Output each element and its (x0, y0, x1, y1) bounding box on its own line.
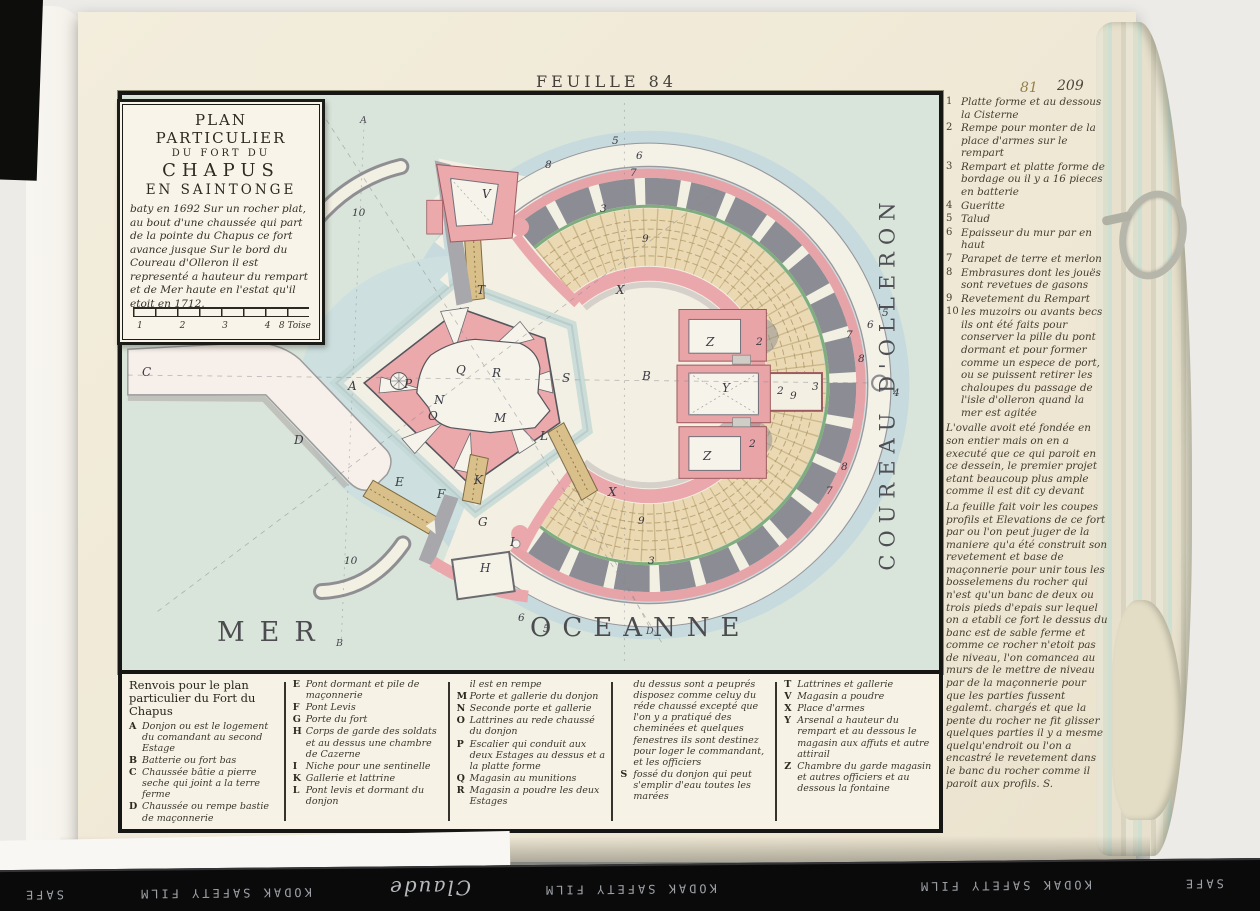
map-number-3: 3 (600, 203, 607, 215)
section-label-a: A (360, 115, 367, 126)
film-edge-text: SAFE (1183, 876, 1224, 890)
map-number-6: 6 (636, 150, 643, 162)
legend-entry: il est en rempe (457, 679, 608, 690)
map-label-t: T (477, 283, 485, 297)
sea-label-oceanne: OCEANNE (530, 613, 750, 643)
sea-label-mer: MER (217, 617, 330, 648)
legend-entry: PEscalier qui conduit aux deux Estages a… (457, 739, 608, 772)
scale-unit: 8 Toise (279, 321, 311, 331)
map-title-line3: CHAPUS (130, 160, 312, 181)
section-label-b: B (336, 638, 343, 649)
legend-entry: GPorte du fort (293, 714, 444, 725)
map-number-3b: 3 (812, 381, 819, 393)
map-description: baty en 1692 Sur un rocher plat, au bout… (130, 203, 312, 311)
map-label-o: O (428, 409, 438, 423)
legend-entry: XPlace d'armes (784, 703, 935, 714)
map-number-7: 7 (630, 167, 637, 179)
folio-stamp: 81 (1020, 80, 1038, 96)
sheet-number: FEUILLE 84 (536, 72, 677, 91)
legend-column-4: du dessus sont a peuprés disposez comme … (613, 674, 775, 829)
map-label-h: H (480, 561, 490, 575)
map-number-5: 5 (612, 135, 619, 147)
legend-entry: VMagasin a poudre (784, 691, 935, 702)
legend-entry: CChaussée bâtie a pierre seche qui joint… (129, 767, 280, 800)
map-title-line2: DU FORT DU (130, 148, 312, 159)
map-number-2b: 2 (749, 438, 756, 450)
channel-label: COUREAU D'OLLERON (876, 195, 900, 570)
map-number-9b: 9 (790, 390, 797, 402)
map-number-10b: 10 (344, 555, 357, 567)
film-edge-text: KODAK SAFETY FILM (543, 881, 717, 897)
map-label-m: M (494, 411, 506, 425)
map-label-k: K (474, 473, 483, 487)
bottom-legend: Renvois pour le plan particulier du Fort… (118, 674, 943, 833)
map-label-p: P (404, 377, 412, 391)
note-entry: 4Gueritte (946, 200, 1108, 213)
title-cartouche: PLAN PARTICULIER DU FORT DU CHAPUS EN SA… (117, 99, 325, 345)
map-title-line4: EN SAINTONGE (130, 182, 312, 198)
film-handwriting: Claude (388, 876, 471, 901)
map-label-r: R (492, 366, 501, 380)
map-number-2c: 2 (777, 385, 784, 397)
map-number-9: 9 (642, 233, 649, 245)
legend-entry: YArsenal a hauteur du rempart et au dess… (784, 715, 935, 759)
note-paragraph: La feuille fait voir les coupes profils … (946, 501, 1108, 790)
map-label-d: D (294, 433, 304, 447)
map-label-l: L (540, 429, 548, 443)
note-entry: 5Talud (946, 213, 1108, 226)
legend-entry: FPont Levis (293, 702, 444, 713)
map-label-z2: Z (703, 449, 711, 463)
scale-ticks: 1 2 3 4 (137, 321, 288, 331)
map-label-s: S (562, 371, 570, 385)
legend-column-3: il est en rempe MPorte et gallerie du do… (450, 674, 612, 829)
channel-label-wrap: COUREAU D'OLLERON (848, 95, 928, 670)
map-number-10: 10 (352, 207, 365, 219)
legend-entry: RMagasin a poudre les deux Estages (457, 785, 608, 807)
scanned-atlas-photo: FEUILLE 84 81 209 (0, 0, 1260, 911)
legend-entry: OLattrines au rede chaussé du donjon (457, 715, 608, 737)
map-number-8: 8 (545, 159, 552, 171)
legend-header: Renvois pour le plan particulier du Fort… (129, 679, 280, 719)
film-edge-text: KODAK SAFETY FILM (138, 885, 312, 901)
legend-entry: BBatterie ou fort bas (129, 755, 280, 766)
map-number-6c: 6 (518, 612, 525, 624)
map-title-line1: PLAN PARTICULIER (130, 111, 312, 147)
right-margin-notes: 1Platte forme et au dessous la Cisterne … (946, 96, 1108, 790)
legend-entry: LPont levis et dormant du donjon (293, 785, 444, 807)
note-entry: 7Parapet de terre et merlon (946, 253, 1108, 266)
scale-bar (133, 307, 309, 317)
legend-entry: DChaussée ou rempe bastie de maçonnerie (129, 801, 280, 823)
note-entry: 6Epaisseur du mur par en haut (946, 227, 1108, 252)
map-number-8c: 8 (841, 461, 848, 473)
note-entry: 9Revetement du Rempart (946, 293, 1108, 306)
legend-entry: MPorte et gallerie du donjon (457, 691, 608, 702)
legend-entry: INiche pour une sentinelle (293, 761, 444, 772)
map-number-3c: 3 (648, 555, 655, 567)
legend-column-5: TLattrines et gallerie VMagasin a poudre… (777, 674, 939, 829)
map-label-z1: Z (706, 335, 714, 349)
note-entry: 1Platte forme et au dessous la Cisterne (946, 96, 1108, 121)
legend-entry: HCorps de garde des soldats et au dessus… (293, 726, 444, 759)
map-label-b: B (642, 369, 651, 383)
legend-entry: EPont dormant et pile de maçonnerie (293, 679, 444, 701)
film-edge-text: KODAK SAFETY FILM (918, 878, 1092, 894)
map-label-y: Y (722, 381, 730, 395)
map-label-g: G (478, 515, 488, 529)
legend-entry: NSeconde porte et gallerie (457, 703, 608, 714)
film-edge-text: SAFE (23, 888, 64, 902)
legend-entry: ZChambre du garde magasin et autres offi… (784, 761, 935, 794)
legend-entry: Sfossé du donjon qui peut s'emplir d'eau… (620, 769, 771, 802)
map-label-x2: X (608, 485, 617, 499)
folio-number: 209 (1057, 78, 1084, 94)
legend-entry: TLattrines et gallerie (784, 679, 935, 690)
legend-entry: KGallerie et lattrine (293, 773, 444, 784)
map-number-9c: 9 (638, 515, 645, 527)
legend-entry: ADonjon ou est le logement du comandant … (129, 721, 280, 754)
map-label-q: Q (456, 363, 466, 377)
map-label-i: I (510, 535, 515, 549)
cartouche-inner: PLAN PARTICULIER DU FORT DU CHAPUS EN SA… (122, 104, 320, 340)
map-label-a-donjon: A (348, 379, 357, 393)
map-label-v: V (482, 187, 491, 201)
legend-entry: QMagasin au munitions (457, 773, 608, 784)
map-label-f: F (437, 487, 445, 501)
note-entry: 8Embrasures dont les jouës sont revetues… (946, 267, 1108, 292)
map-label-x1: X (616, 283, 625, 297)
note-entry: 2Rempe pour monter de la place d'armes s… (946, 122, 1108, 160)
map-label-e: E (395, 475, 404, 489)
legend-column-2: EPont dormant et pile de maçonnerie FPon… (286, 674, 448, 829)
note-paragraph: L'ovalle avoit eté fondée en son entier … (946, 422, 1108, 497)
map-number-2a: 2 (756, 336, 763, 348)
map-label-c: C (142, 365, 151, 379)
note-entry: 3Rempart et platte forme de bordage ou i… (946, 161, 1108, 199)
photo-corner-mask (0, 0, 43, 181)
legend-column-1: Renvois pour le plan particulier du Fort… (122, 674, 284, 829)
map-number-7c: 7 (826, 485, 833, 497)
map-label-n: N (434, 393, 445, 407)
legend-entry: du dessus sont a peuprés disposez comme … (620, 679, 771, 768)
note-entry: 10les muzoirs ou avants becs ils ont été… (946, 306, 1108, 419)
